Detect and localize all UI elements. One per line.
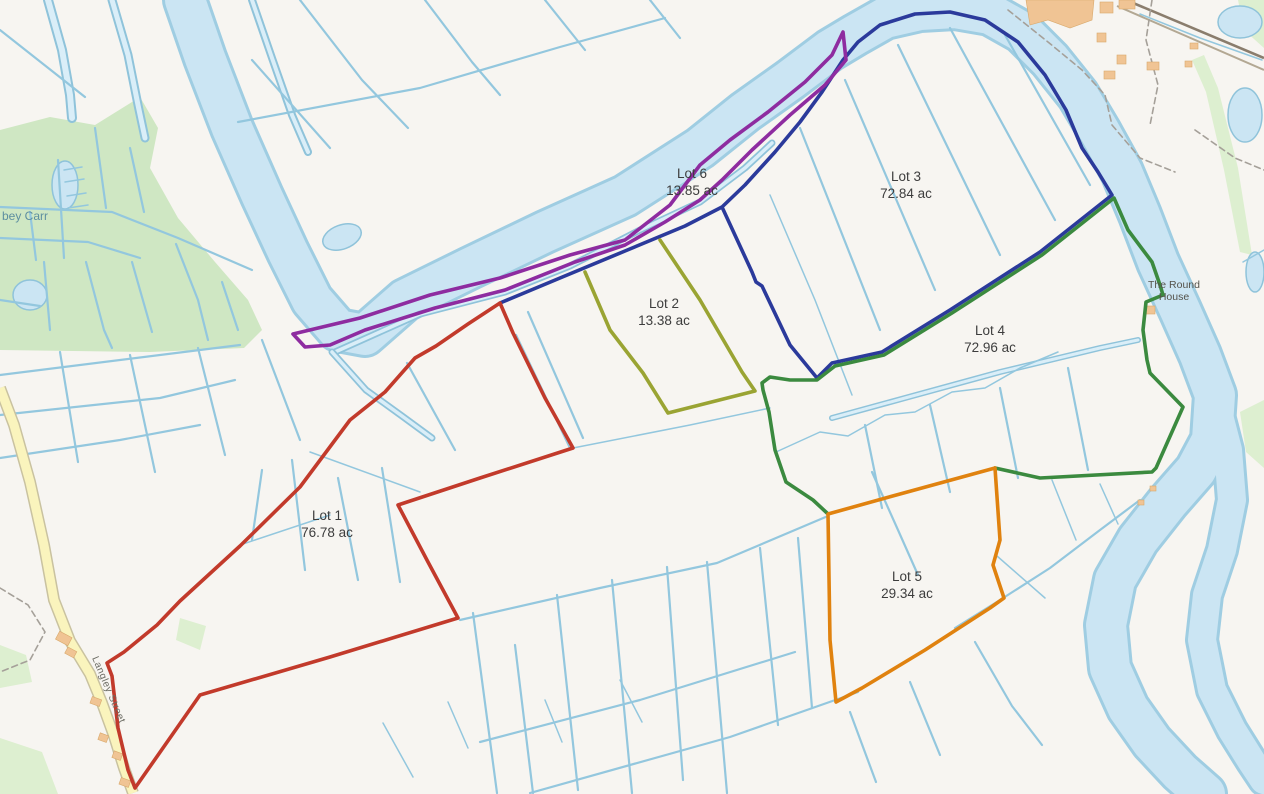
building: [1117, 55, 1126, 64]
lot-6-name: Lot 6: [677, 166, 707, 181]
lot-2-area: 13.38 ac: [638, 313, 690, 328]
building: [1138, 500, 1144, 505]
building: [1147, 62, 1159, 70]
building: [1185, 61, 1192, 67]
round-house-line1: The Round: [1148, 279, 1200, 291]
map-canvas[interactable]: Lot 176.78 ac Lot 213.38 ac Lot 372.84 a…: [0, 0, 1264, 794]
pond: [1218, 6, 1262, 38]
lot-2-name: Lot 2: [649, 296, 679, 311]
round-house-building: [1146, 306, 1155, 314]
lot-6-area: 13.85 ac: [666, 183, 718, 198]
lot-5-area: 29.34 ac: [881, 586, 933, 601]
building: [1150, 486, 1156, 491]
pond: [1228, 88, 1262, 142]
building: [1119, 0, 1135, 9]
lot-4-name: Lot 4: [975, 323, 1006, 338]
lot-4-area: 72.96 ac: [964, 340, 1016, 355]
lot-1-name: Lot 1: [312, 508, 342, 523]
map-svg[interactable]: Lot 176.78 ac Lot 213.38 ac Lot 372.84 a…: [0, 0, 1264, 794]
building: [1100, 2, 1113, 13]
lot-3-name: Lot 3: [891, 169, 921, 184]
lot-1-area: 76.78 ac: [301, 525, 353, 540]
lot-5-name: Lot 5: [892, 569, 922, 584]
lot-3-area: 72.84 ac: [880, 186, 932, 201]
building: [1104, 71, 1115, 79]
place-label-carr: bey Carr: [2, 209, 48, 223]
building: [1097, 33, 1106, 42]
building: [1190, 43, 1198, 49]
round-house-line2: House: [1159, 291, 1190, 303]
